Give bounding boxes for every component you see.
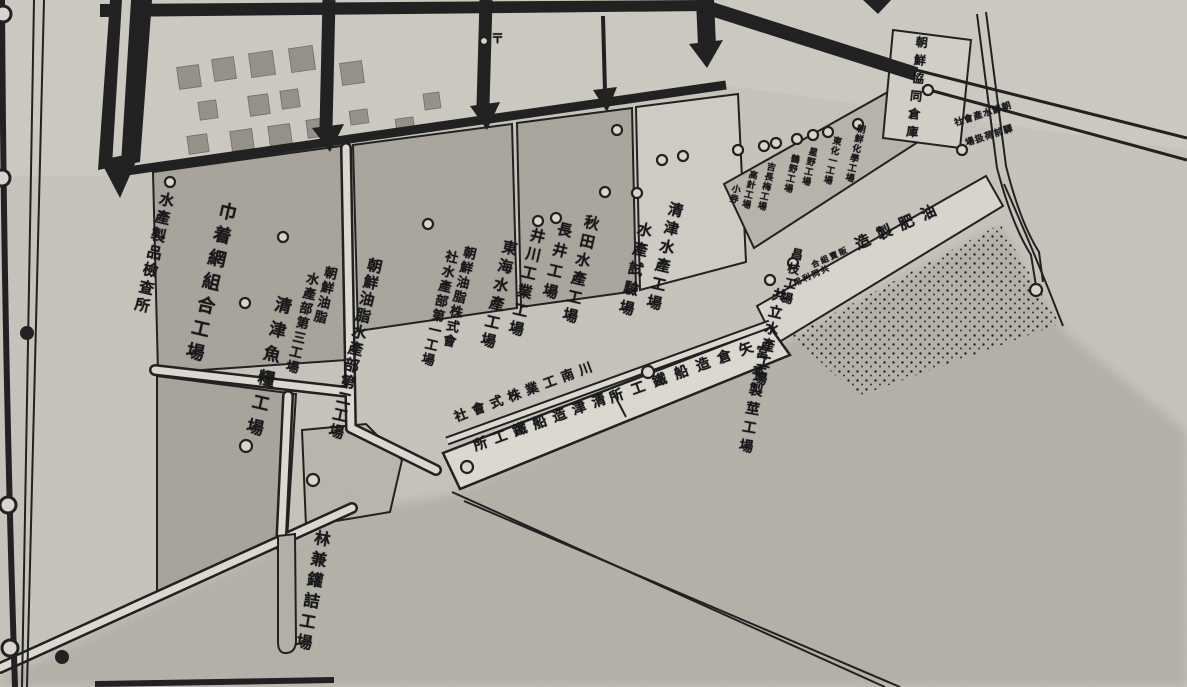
label-small-factory-3: 吉長梅工場 [755, 161, 775, 212]
label-yuhi-line2: 合組賣販 [810, 246, 850, 270]
label-station-area-2: 場扱荷前驛 [965, 125, 1015, 149]
labels-layer: 水產製品檢查所 巾着網組合工場 清津魚糧工場 朝鮮油脂 水產部第三工場 朝鮮油脂… [0, 0, 1187, 687]
label-small-factory-2: 高針工場 [739, 169, 757, 210]
label-yuhi-seizo: 造製肥油 [853, 200, 947, 253]
label-small-factory-5: 星野工場 [799, 146, 817, 187]
label-chosen-kyodo-soko: 朝鮮協同倉庫 [905, 35, 928, 144]
label-seishin-suisan-kojo: 清津水產工場 [644, 200, 684, 314]
label-small-factory-7: 朝鮮化學工場 [843, 123, 865, 183]
label-station-area-1: 社會產水鮮朝 [954, 102, 1014, 129]
label-small-factory-4: 鶴野工場 [781, 153, 799, 194]
label-yagura-zosen-tekkosho: 所工鐵船造倉矢 [608, 337, 764, 405]
label-kinchaku-ami-kumiai-kojo: 巾着網組合工場 [181, 200, 236, 368]
label-small-factory-1: 小券 [727, 183, 740, 205]
label-chosen-yushi-suisanbu-dai2-kojo: 朝鮮油脂水產部第二工場 [326, 256, 383, 442]
label-miyamoto-kojo: 宮本製莖工場 [736, 344, 770, 459]
label-hayashikane-kanzume-kojo: 林兼鑵詰工場 [292, 529, 330, 656]
map-canvas: 水產製品檢查所 巾着網組合工場 清津魚糧工場 朝鮮油脂 水產部第三工場 朝鮮油脂… [0, 0, 1187, 687]
post-mark: 〒 [491, 33, 504, 46]
label-suisan-seihin-kensajo: 水產製品檢查所 [132, 190, 175, 316]
label-small-factory-6: 東化一工場 [821, 135, 841, 186]
